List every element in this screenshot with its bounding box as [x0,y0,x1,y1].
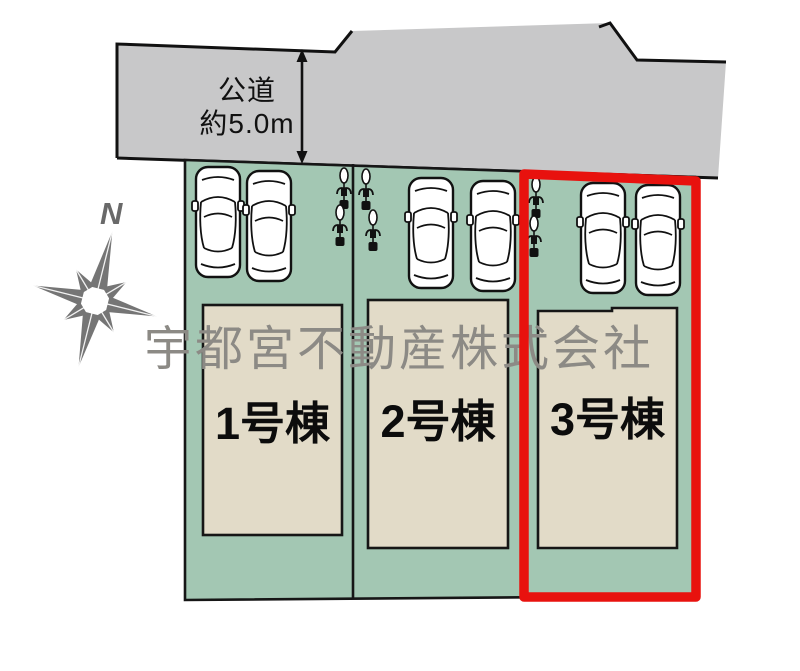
plot-2-car-2 [467,181,519,291]
plot-3-car-2 [632,185,684,295]
company-watermark: 宇都宮不動産株式会社 [144,309,654,379]
plot-2-car-1 [405,178,457,288]
plot-2-label: 2号棟 [368,398,508,445]
plot-1-label: 1号棟 [203,400,342,447]
road-label: 公道 約5.0m [181,74,313,140]
plot-3-car-1 [577,183,629,293]
road-width: 約5.0m [181,107,313,140]
plot-3-label: 3号棟 [538,396,677,443]
plot-1-car-1 [192,167,244,277]
site-plan-diagram: 公道 約5.0m N 1号棟 2号棟 3号棟 宇都宮不動産株式会社 [0,0,800,671]
plot-1-car-2 [243,171,295,281]
compass-north-label: N [100,196,122,232]
road-name: 公道 [181,74,313,107]
